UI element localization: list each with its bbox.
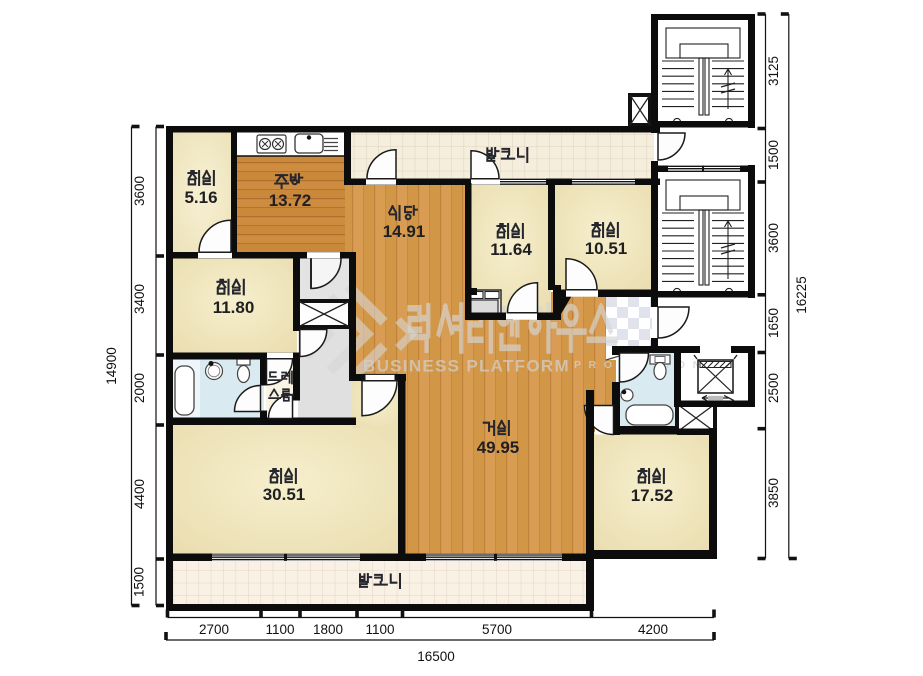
svg-text:1650: 1650 xyxy=(766,308,781,338)
svg-text:5.16: 5.16 xyxy=(184,188,217,207)
svg-text:1800: 1800 xyxy=(313,622,343,637)
svg-text:2500: 2500 xyxy=(766,373,781,403)
svg-text:13.72: 13.72 xyxy=(269,191,312,210)
svg-text:1100: 1100 xyxy=(365,622,394,637)
svg-text:16225: 16225 xyxy=(794,276,809,314)
svg-text:10.51: 10.51 xyxy=(585,239,628,258)
svg-text:3400: 3400 xyxy=(132,284,147,314)
svg-text:17.52: 17.52 xyxy=(631,486,674,505)
svg-text:BUSINESS PLATFORM: BUSINESS PLATFORM xyxy=(363,357,570,376)
svg-text:49.95: 49.95 xyxy=(477,438,520,457)
svg-text:3850: 3850 xyxy=(766,478,781,508)
svg-text:11.64: 11.64 xyxy=(490,240,532,259)
svg-text:14900: 14900 xyxy=(104,347,119,385)
svg-text:2700: 2700 xyxy=(199,622,229,637)
svg-text:3600: 3600 xyxy=(132,176,147,206)
svg-text:14.91: 14.91 xyxy=(383,222,426,241)
svg-text:4400: 4400 xyxy=(132,479,147,509)
svg-text:4200: 4200 xyxy=(638,622,668,637)
svg-text:30.51: 30.51 xyxy=(263,485,306,504)
svg-text:5700: 5700 xyxy=(482,622,512,637)
svg-text:1100: 1100 xyxy=(265,622,294,637)
svg-text:11.80: 11.80 xyxy=(213,298,255,317)
svg-text:3125: 3125 xyxy=(766,56,781,86)
svg-text:16500: 16500 xyxy=(417,649,455,664)
svg-text:1500: 1500 xyxy=(132,567,147,597)
svg-text:1500: 1500 xyxy=(766,140,781,170)
svg-text:2000: 2000 xyxy=(132,373,147,403)
svg-text:3600: 3600 xyxy=(766,223,781,253)
